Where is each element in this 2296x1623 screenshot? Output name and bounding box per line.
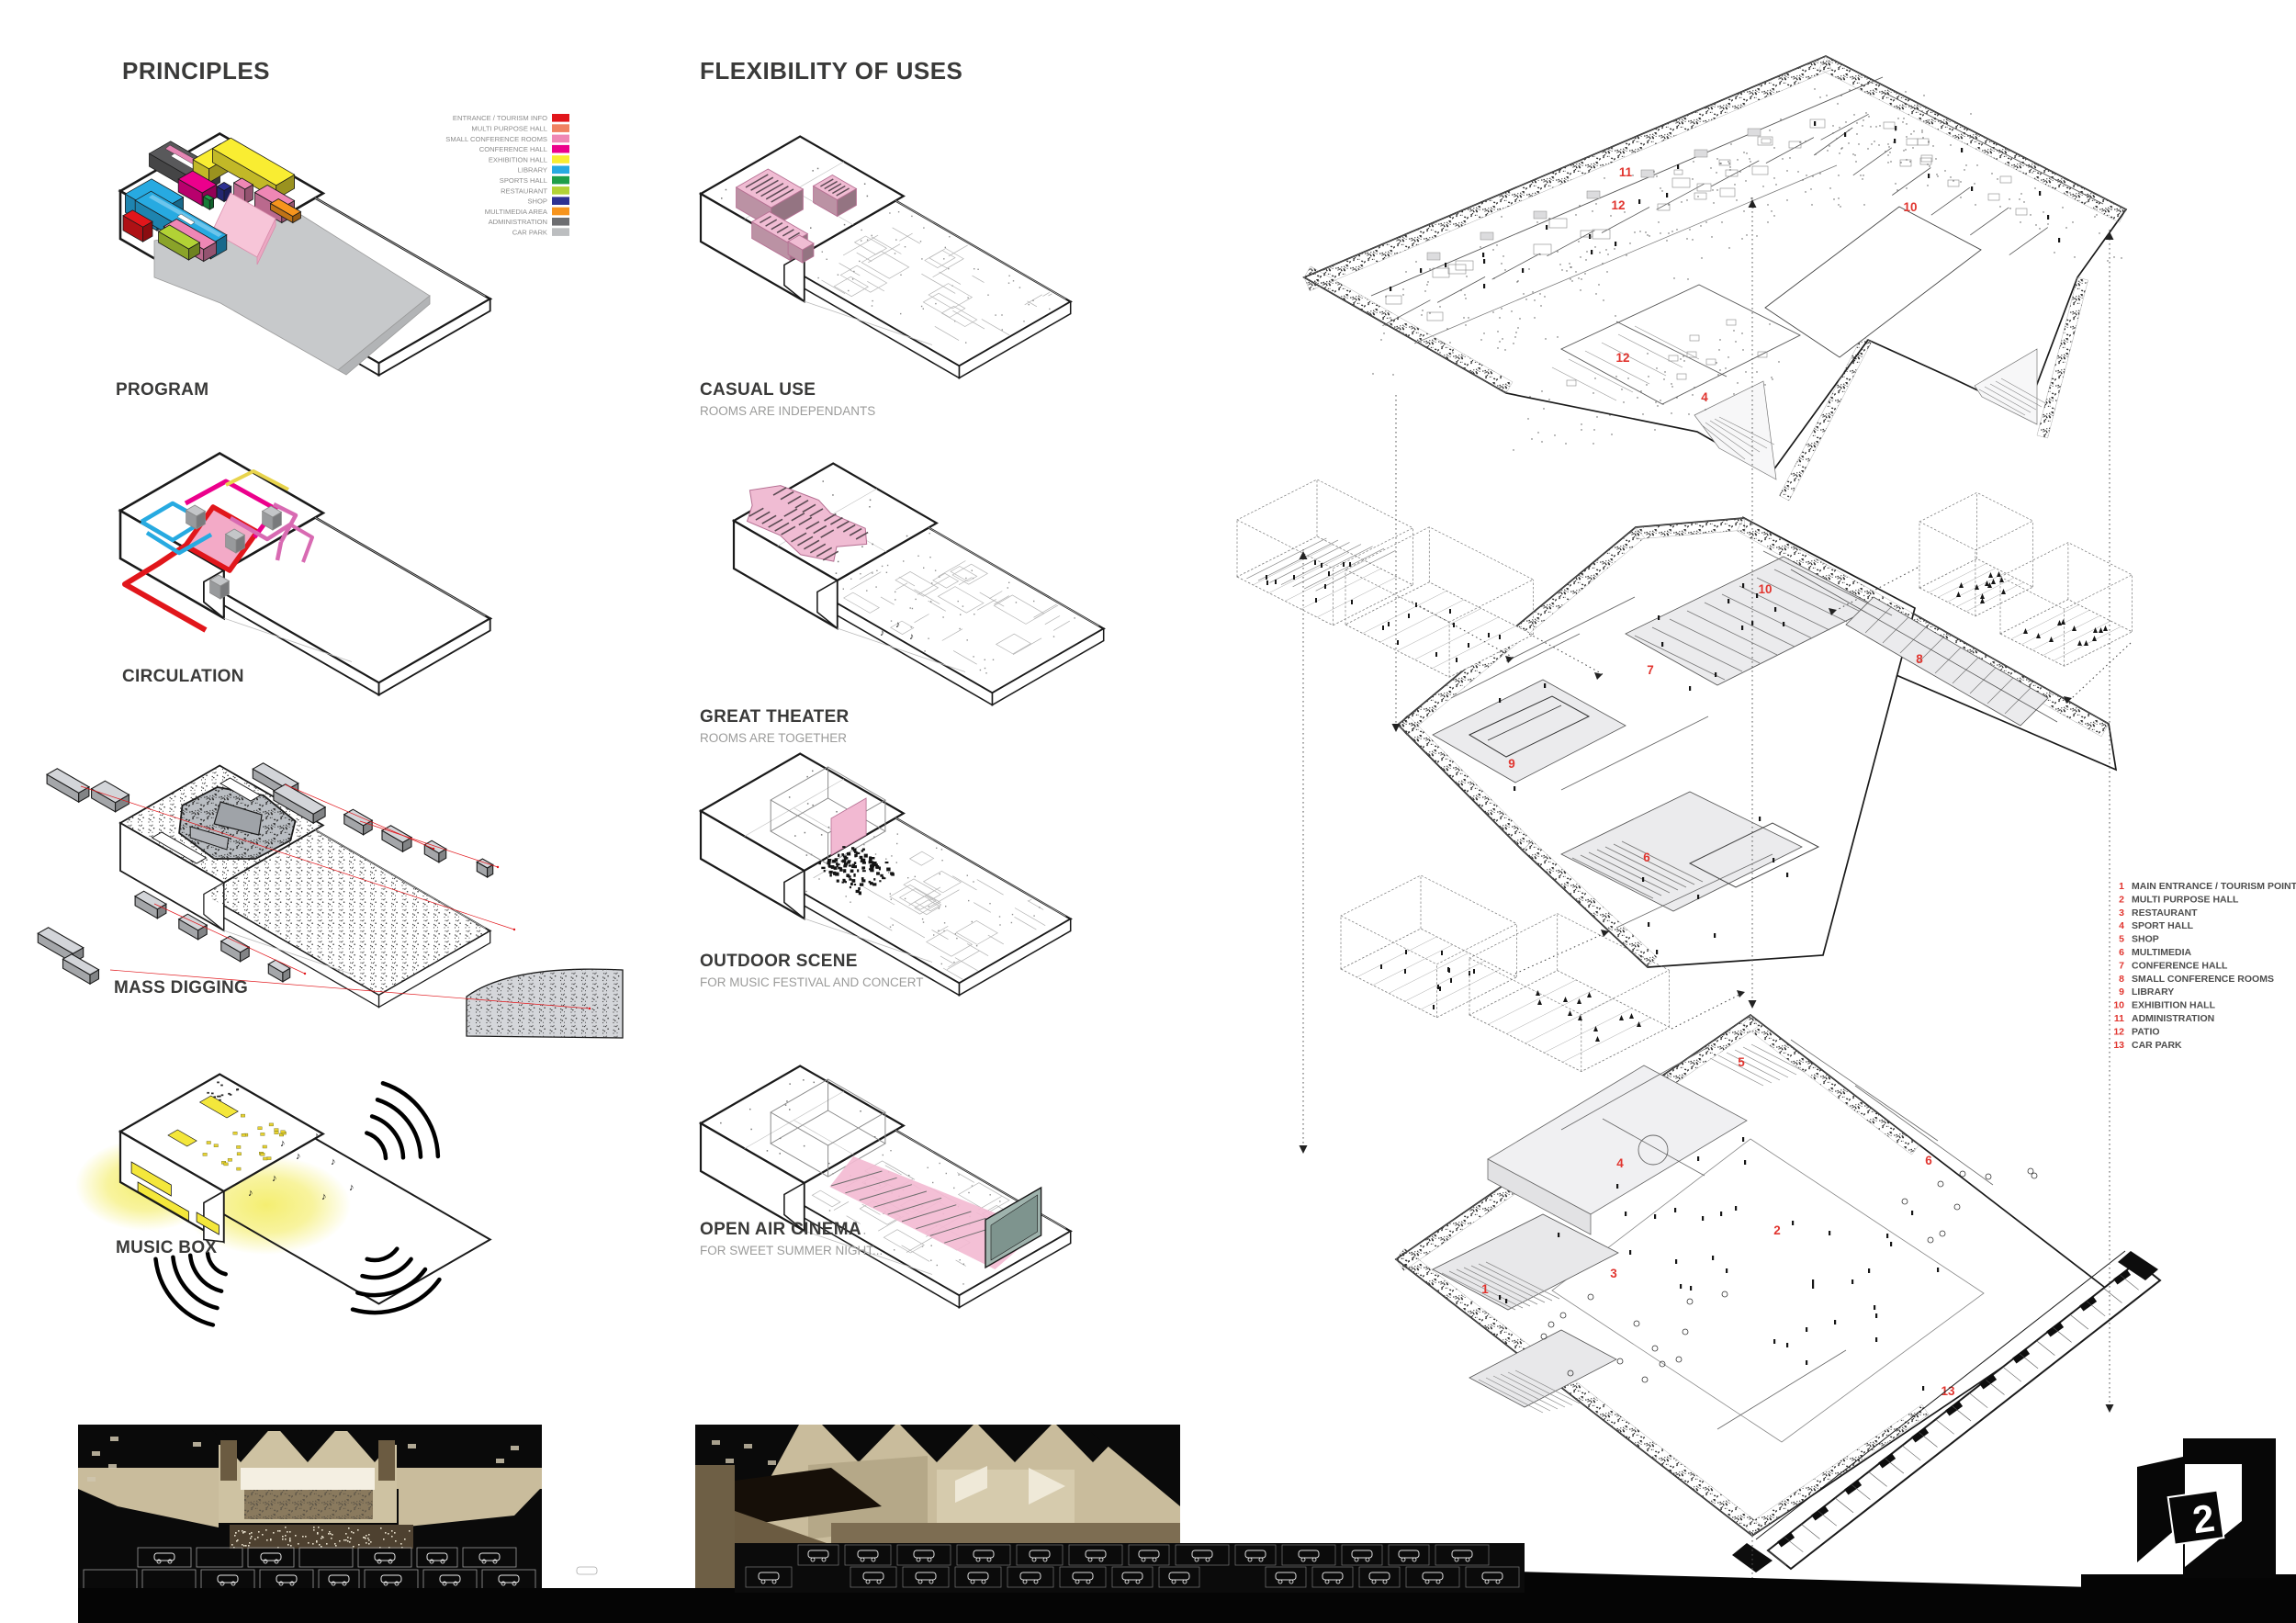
svg-text:4: 4 [2119,920,2124,931]
svg-text:PATIO: PATIO [2132,1026,2160,1037]
svg-text:9: 9 [1508,757,1515,771]
svg-text:12: 12 [1615,351,1629,365]
svg-text:SHOP: SHOP [527,197,547,206]
svg-text:2: 2 [2119,894,2124,905]
svg-text:♪: ♪ [314,1131,320,1142]
svg-text:3: 3 [2119,907,2124,919]
svg-text:ADMINISTRATION: ADMINISTRATION [489,218,547,226]
svg-text:ROOMS ARE TOGETHER: ROOMS ARE TOGETHER [700,731,847,745]
svg-text:♪: ♪ [349,1182,355,1193]
svg-text:FLEXIBILITY OF USES: FLEXIBILITY OF USES [700,57,962,85]
svg-text:MUSIC BOX: MUSIC BOX [116,1238,217,1257]
svg-text:8: 8 [1916,652,1923,666]
svg-text:SMALL CONFERENCE ROOMS: SMALL CONFERENCE ROOMS [2132,974,2274,985]
svg-text:♪: ♪ [321,1191,327,1202]
svg-text:♪: ♪ [248,1188,253,1199]
svg-text:4: 4 [1616,1156,1624,1170]
svg-text:OPEN AIR CINEMA: OPEN AIR CINEMA [700,1220,861,1239]
svg-text:5: 5 [1738,1055,1745,1069]
svg-text:LIBRARY: LIBRARY [518,166,547,175]
svg-text:4: 4 [1701,390,1708,404]
svg-text:6: 6 [2119,947,2124,958]
svg-text:6: 6 [1925,1154,1932,1167]
svg-text:3: 3 [1610,1267,1617,1280]
svg-text:CONFERENCE HALL: CONFERENCE HALL [2132,960,2228,971]
svg-text:CIRCULATION: CIRCULATION [122,667,244,686]
svg-text:MULTI PURPOSE HALL: MULTI PURPOSE HALL [2132,894,2239,905]
svg-text:SHOP: SHOP [2132,934,2159,945]
svg-text:LIBRARY: LIBRARY [2132,986,2174,997]
svg-text:12: 12 [1611,198,1625,212]
svg-text:8: 8 [2119,974,2124,985]
svg-text:SPORT HALL: SPORT HALL [2132,920,2194,931]
svg-text:♪: ♪ [296,1151,301,1162]
svg-text:OUTDOOR SCENE: OUTDOOR SCENE [700,952,858,971]
svg-text:10: 10 [2113,1000,2124,1011]
svg-text:ADMINISTRATION: ADMINISTRATION [2132,1013,2214,1024]
svg-text:ENTRANCE / TOURISM INFO: ENTRANCE / TOURISM INFO [453,114,547,122]
svg-text:13: 13 [1941,1384,1955,1398]
svg-text:RESTAURANT: RESTAURANT [501,186,547,195]
svg-text:5: 5 [2119,934,2124,945]
svg-text:10: 10 [1903,200,1917,214]
svg-text:6: 6 [1643,851,1650,864]
svg-text:EXHIBITION HALL: EXHIBITION HALL [2132,1000,2216,1011]
svg-text:2: 2 [1773,1223,1781,1237]
svg-text:CASUAL USE: CASUAL USE [700,380,816,400]
svg-text:♪: ♪ [895,620,900,630]
svg-text:12: 12 [2113,1026,2124,1037]
svg-text:♪: ♪ [909,632,914,642]
svg-text:MULTI PURPOSE HALL: MULTI PURPOSE HALL [471,125,547,133]
svg-text:7: 7 [1647,663,1654,677]
svg-text:♪: ♪ [331,1156,336,1167]
svg-text:RESTAURANT: RESTAURANT [2132,907,2198,919]
svg-text:GREAT THEATER: GREAT THEATER [700,707,850,727]
svg-text:♪: ♪ [280,1138,286,1149]
svg-text:11: 11 [2114,1013,2124,1024]
svg-text:13: 13 [2113,1040,2124,1051]
svg-text:MULTIMEDIA AREA: MULTIMEDIA AREA [485,208,548,216]
svg-text:7: 7 [2119,960,2124,971]
svg-text:EXHIBITION HALL: EXHIBITION HALL [489,155,547,163]
svg-text:1: 1 [2119,881,2124,892]
svg-text:MASS DIGGING: MASS DIGGING [114,978,248,997]
svg-text:CAR PARK: CAR PARK [2132,1040,2182,1051]
svg-text:ROOMS ARE INDEPENDANTS: ROOMS ARE INDEPENDANTS [700,404,875,418]
svg-text:MULTIMEDIA: MULTIMEDIA [2132,947,2192,958]
svg-text:MAIN ENTRANCE / TOURISM POINT: MAIN ENTRANCE / TOURISM POINT [2132,881,2296,892]
svg-text:FOR SWEET SUMMER NIGHT...: FOR SWEET SUMMER NIGHT... [700,1244,883,1257]
svg-text:10: 10 [1758,582,1772,596]
svg-text:FOR MUSIC FESTIVAL AND CONCERT: FOR MUSIC FESTIVAL AND CONCERT [700,975,924,989]
svg-text:SPORTS HALL: SPORTS HALL [500,176,547,185]
svg-text:9: 9 [2119,986,2124,997]
svg-text:♪: ♪ [272,1173,277,1184]
svg-text:11: 11 [1619,165,1633,179]
svg-text:SMALL CONFERENCE ROOMS: SMALL CONFERENCE ROOMS [445,135,547,143]
svg-text:1: 1 [1481,1282,1489,1296]
svg-text:PRINCIPLES: PRINCIPLES [122,57,270,85]
svg-text:CAR PARK: CAR PARK [512,229,547,237]
svg-text:♪: ♪ [880,628,884,638]
svg-text:CONFERENCE HALL: CONFERENCE HALL [479,145,547,153]
svg-text:PROGRAM: PROGRAM [116,380,208,400]
